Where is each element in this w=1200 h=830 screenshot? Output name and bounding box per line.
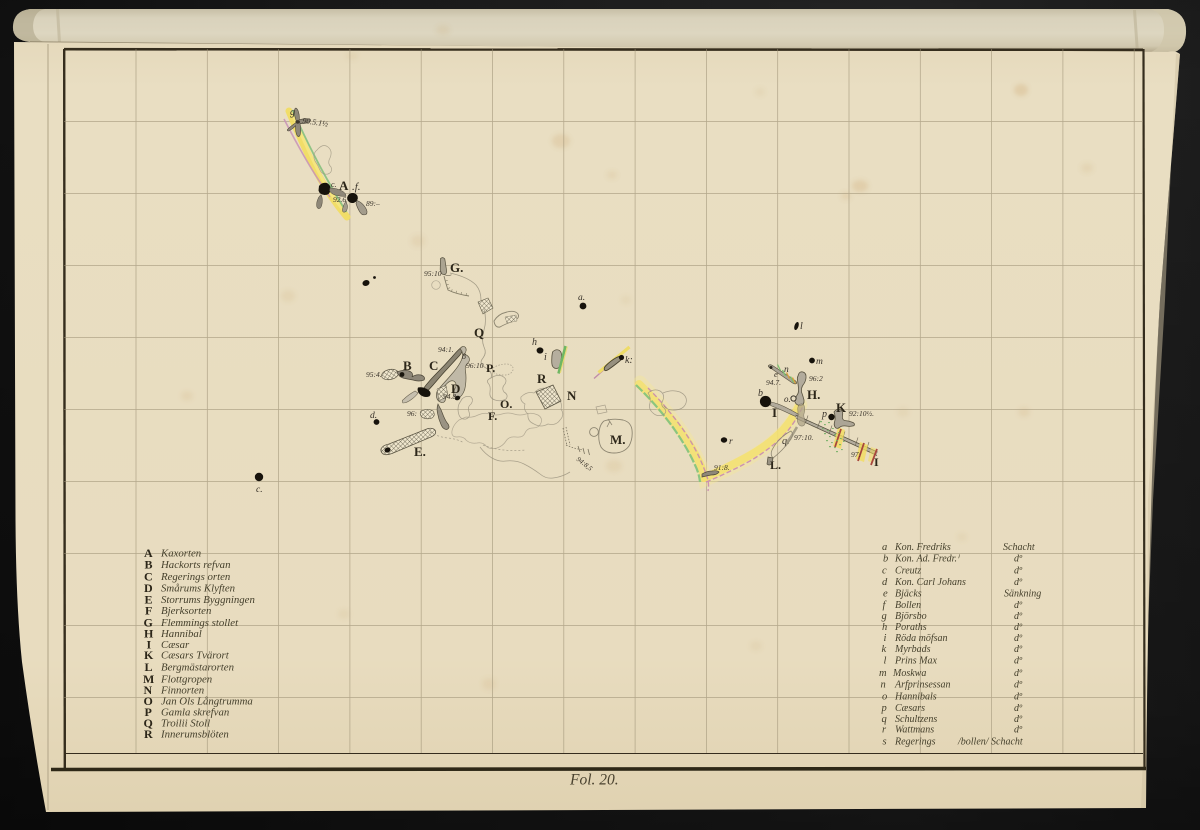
svg-text:m: m <box>879 668 887 679</box>
svg-text:dº: dº <box>1014 703 1023 714</box>
svg-text:Björsbo: Björsbo <box>895 611 927 622</box>
svg-text:b: b <box>758 388 763 399</box>
svg-text:Arfprinsessan: Arfprinsessan <box>894 680 951 691</box>
svg-text:92.6: 92.6 <box>333 195 346 204</box>
svg-text:B: B <box>403 358 412 373</box>
svg-text:Hackorts refvan: Hackorts refvan <box>160 559 230 571</box>
svg-text:.f.: .f. <box>352 181 361 193</box>
svg-text:N: N <box>567 388 577 403</box>
svg-text:96:2: 96:2 <box>809 374 823 383</box>
svg-text:Bjerksorten: Bjerksorten <box>161 605 211 617</box>
svg-text:R: R <box>537 371 547 386</box>
svg-text:Q: Q <box>474 325 484 340</box>
svg-text:dº: dº <box>1014 554 1023 565</box>
svg-text:Schultzens: Schultzens <box>895 714 937 725</box>
svg-text:95:4.: 95:4. <box>366 370 382 379</box>
svg-text:o: o <box>882 692 887 703</box>
svg-text:n: n <box>881 680 886 691</box>
svg-text:G.: G. <box>450 260 463 275</box>
svg-text:s: s <box>883 737 887 748</box>
svg-text:dº: dº <box>1014 668 1023 679</box>
svg-text:97:10.: 97:10. <box>794 433 813 442</box>
svg-text:92:10½.: 92:10½. <box>849 409 874 418</box>
svg-text:dº: dº <box>1014 633 1023 644</box>
svg-text:Bergmästarorten: Bergmästarorten <box>161 662 234 674</box>
svg-text:k: k <box>882 644 887 655</box>
svg-text:dº: dº <box>1014 725 1023 736</box>
svg-text:I: I <box>874 455 879 469</box>
svg-text:a: a <box>882 542 887 553</box>
svg-text:Regerings: Regerings <box>894 737 936 748</box>
svg-text:dº: dº <box>1014 714 1023 725</box>
svg-text:95:10: 95:10 <box>424 269 442 278</box>
svg-text:p: p <box>821 409 827 420</box>
svg-text:Innerumsblöten: Innerumsblöten <box>160 729 229 741</box>
svg-text:A: A <box>339 178 349 193</box>
svg-text:94.8: 94.8 <box>443 392 456 401</box>
svg-text:dº: dº <box>1014 622 1023 633</box>
svg-text:Moskwa: Moskwa <box>892 668 926 679</box>
svg-text:l: l <box>884 656 887 667</box>
svg-text:dº: dº <box>1014 692 1023 703</box>
svg-text:94:1.: 94:1. <box>438 345 454 354</box>
svg-text:P.: P. <box>486 361 495 375</box>
svg-text:g: g <box>290 107 295 118</box>
svg-text:Prins Max: Prins Max <box>894 656 938 667</box>
svg-text:dº: dº <box>1014 577 1023 588</box>
svg-text:C: C <box>429 358 438 373</box>
svg-text:i: i <box>884 633 887 644</box>
svg-text:96:10: 96:10 <box>466 361 484 370</box>
svg-text:94.7.: 94.7. <box>766 378 781 387</box>
svg-text:b: b <box>883 554 888 565</box>
svg-text:89:–: 89:– <box>366 199 380 208</box>
svg-text:Cæsars: Cæsars <box>895 703 925 714</box>
svg-text:k:: k: <box>625 355 633 366</box>
svg-text:dº: dº <box>1014 680 1023 691</box>
svg-text:Cæsars Tvärort: Cæsars Tvärort <box>161 650 230 662</box>
svg-text:Poraths: Poraths <box>894 622 927 633</box>
svg-text:L.: L. <box>770 458 781 472</box>
svg-text:e: e <box>883 589 888 600</box>
svg-text:E.: E. <box>414 444 426 459</box>
svg-text:h: h <box>532 337 537 348</box>
svg-text:Bjäcks: Bjäcks <box>895 589 922 600</box>
svg-text:F.: F. <box>488 409 497 423</box>
svg-text:o.: o. <box>784 394 791 404</box>
svg-text:Kon. Fredriks: Kon. Fredriks <box>894 542 951 553</box>
svg-text:Creutz: Creutz <box>895 566 921 577</box>
svg-text:n: n <box>784 365 789 375</box>
svg-text:8: 8 <box>462 352 466 361</box>
svg-text:Hannibals: Hannibals <box>894 692 937 703</box>
svg-text:i: i <box>544 352 547 363</box>
svg-text:d.: d. <box>370 411 377 421</box>
svg-text:r: r <box>729 437 733 447</box>
svg-text:R: R <box>144 727 153 741</box>
svg-text:Regerings orten: Regerings orten <box>160 571 230 583</box>
svg-text:g: g <box>882 611 887 622</box>
svg-text:M.: M. <box>610 432 626 447</box>
svg-text:p: p <box>881 703 887 714</box>
svg-text:/bollen/ Schacht: /bollen/ Schacht <box>957 737 1023 748</box>
svg-text:dº: dº <box>1014 644 1023 655</box>
svg-text:q: q <box>882 714 887 725</box>
svg-text:Kaxorten: Kaxorten <box>160 548 201 560</box>
svg-text:l: l <box>800 321 803 332</box>
svg-text:Kon. Carl Johans: Kon. Carl Johans <box>894 577 966 588</box>
svg-text:Sänkning: Sänkning <box>1004 589 1041 600</box>
svg-text:K: K <box>836 400 847 415</box>
svg-text:91:8.: 91:8. <box>714 463 730 472</box>
svg-text:Myrbads: Myrbads <box>894 644 931 655</box>
svg-text:a.: a. <box>578 293 585 303</box>
svg-text:Röda möfsan: Röda möfsan <box>894 633 948 644</box>
svg-text:Wattmans: Wattmans <box>895 725 934 736</box>
svg-text:h: h <box>882 622 887 633</box>
svg-text:96:: 96: <box>407 409 417 418</box>
svg-text:dº: dº <box>1014 600 1023 611</box>
svg-text:dº: dº <box>1014 611 1023 622</box>
svg-text:97:: 97: <box>851 450 861 459</box>
svg-text:c.: c. <box>331 180 337 189</box>
svg-text:Bollen: Bollen <box>895 600 921 611</box>
svg-text:Fol. 20.: Fol. 20. <box>569 772 619 789</box>
svg-text:H.: H. <box>807 387 820 402</box>
svg-text:m: m <box>816 357 823 367</box>
svg-text:d: d <box>882 577 888 588</box>
svg-text:dº: dº <box>1014 656 1023 667</box>
svg-text:Smårums Klyften: Smårums Klyften <box>161 583 235 595</box>
svg-text:O.: O. <box>500 397 512 411</box>
svg-text:dº: dº <box>1014 566 1023 577</box>
svg-text:Kon. Ad. Fredr.ⁱ: Kon. Ad. Fredr.ⁱ <box>894 554 961 565</box>
svg-text:Schacht: Schacht <box>1003 542 1035 553</box>
svg-text:c: c <box>882 566 887 577</box>
svg-text:c.: c. <box>256 485 263 495</box>
